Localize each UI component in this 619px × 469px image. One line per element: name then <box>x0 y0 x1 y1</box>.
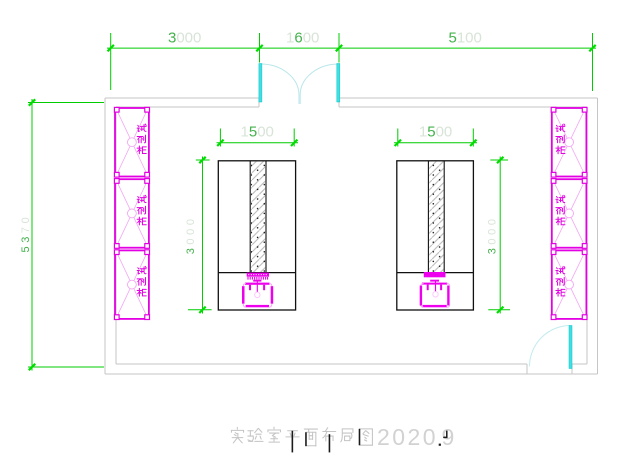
svg-text:1500: 1500 <box>419 124 452 141</box>
svg-text:3000: 3000 <box>185 215 197 254</box>
svg-text:5370: 5370 <box>20 214 32 253</box>
svg-text:2020: 2020 <box>377 424 438 450</box>
svg-text:1500: 1500 <box>241 124 274 141</box>
svg-text:3000: 3000 <box>486 215 498 254</box>
svg-text:5100: 5100 <box>449 30 482 47</box>
svg-text:3000: 3000 <box>168 30 201 47</box>
svg-text:1600: 1600 <box>286 30 319 47</box>
